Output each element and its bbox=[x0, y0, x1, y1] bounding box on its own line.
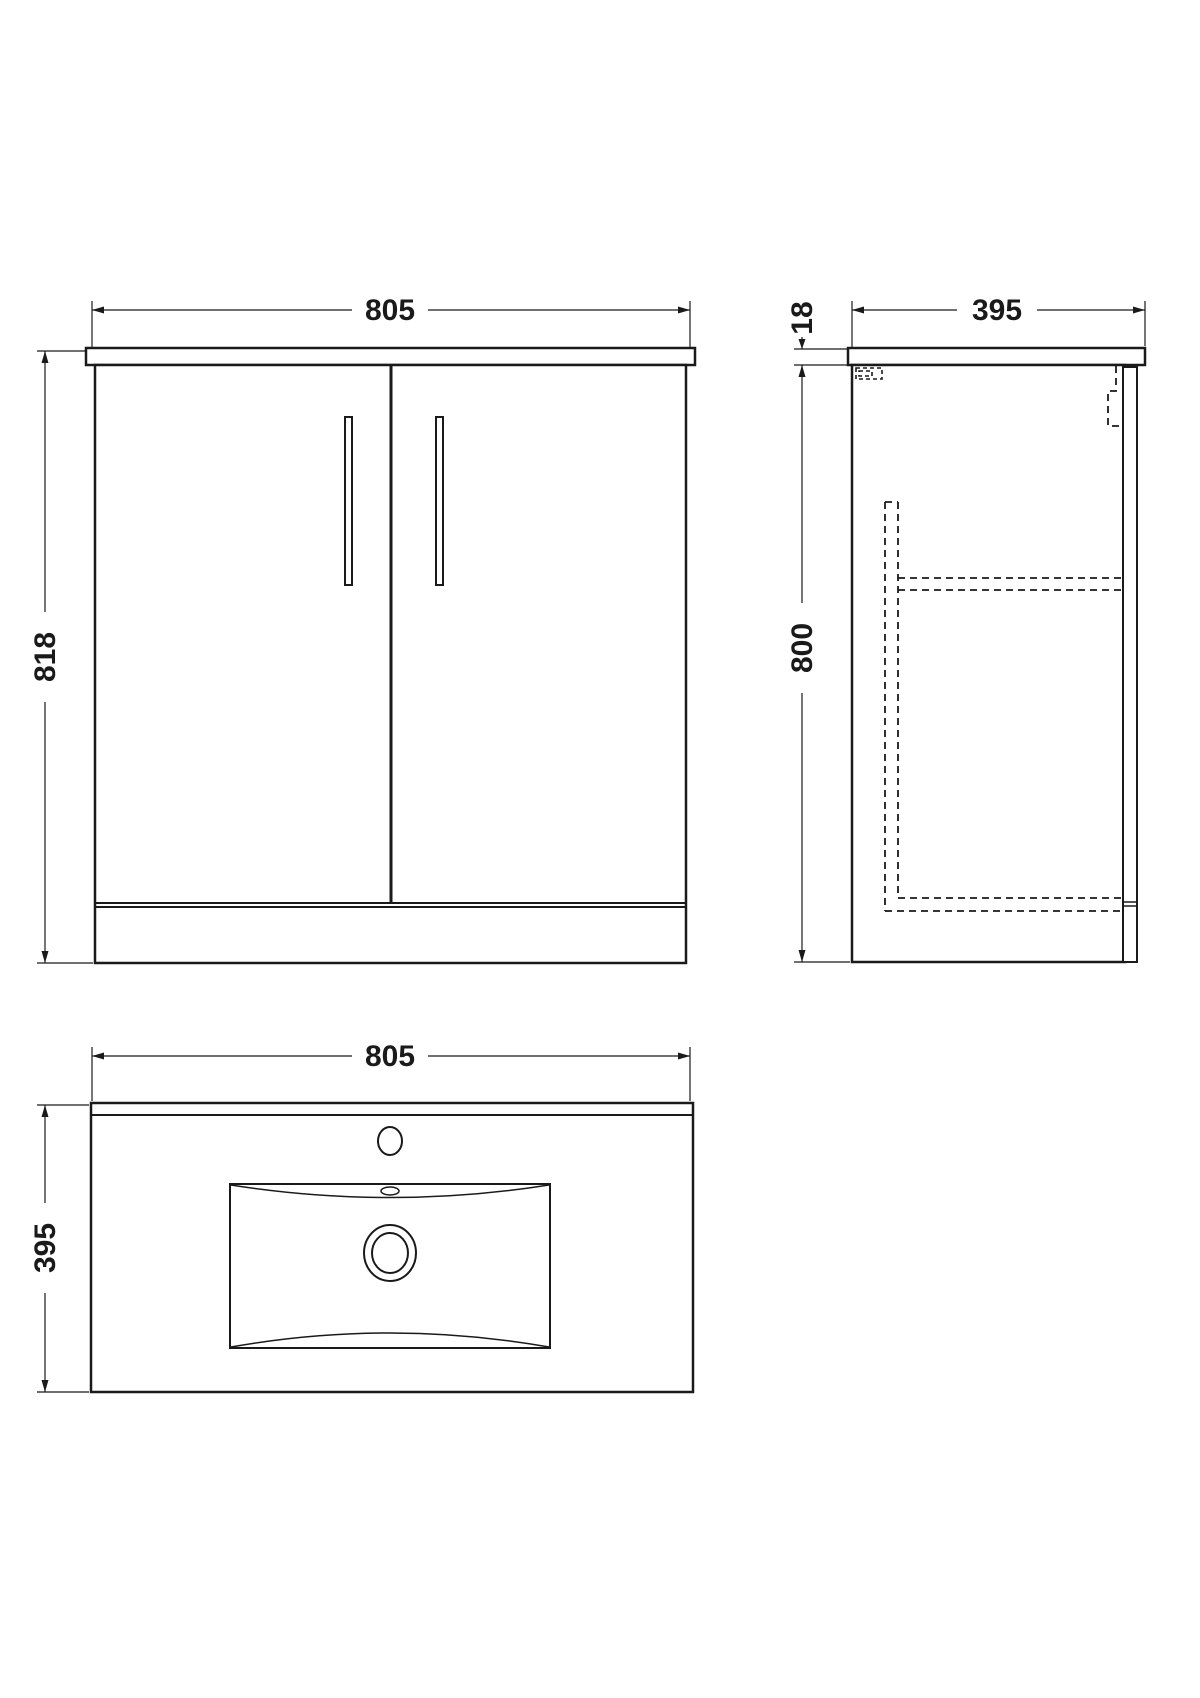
plan-width-dimension: 805 bbox=[92, 1040, 690, 1101]
side-height-label: 800 bbox=[786, 623, 819, 673]
front-worktop bbox=[86, 348, 695, 365]
front-width-label: 805 bbox=[365, 294, 415, 327]
front-left-door-handle bbox=[345, 417, 352, 585]
plan-basin bbox=[230, 1184, 550, 1348]
side-worktop bbox=[848, 348, 1145, 365]
plan-depth-label: 395 bbox=[29, 1223, 62, 1273]
side-depth-dimension: 395 bbox=[852, 294, 1145, 347]
front-height-label: 818 bbox=[29, 632, 62, 682]
side-worktop-thickness-dimension: 18 bbox=[786, 301, 850, 365]
drawing-svg: 805 818 39 bbox=[0, 0, 1200, 1698]
side-depth-label: 395 bbox=[972, 294, 1022, 327]
front-view: 805 818 bbox=[29, 294, 695, 963]
plan-waste-inner bbox=[372, 1233, 408, 1273]
plan-overflow-hole bbox=[381, 1187, 399, 1195]
side-door-panel bbox=[1123, 367, 1137, 962]
front-height-dimension: 818 bbox=[29, 351, 93, 963]
technical-drawing-page: 805 818 39 bbox=[0, 0, 1200, 1698]
front-right-door-handle bbox=[436, 417, 443, 585]
side-height-dimension: 800 bbox=[786, 365, 850, 962]
plan-width-label: 805 bbox=[365, 1040, 415, 1073]
plan-tap-hole bbox=[378, 1127, 402, 1155]
side-cabinet-outline bbox=[852, 365, 1125, 962]
side-worktop-thickness-label: 18 bbox=[786, 301, 819, 334]
plan-view: 805 395 bbox=[29, 1040, 693, 1392]
plan-depth-dimension: 395 bbox=[29, 1105, 89, 1392]
front-width-dimension: 805 bbox=[92, 294, 690, 348]
side-view: 395 18 bbox=[786, 294, 1145, 962]
